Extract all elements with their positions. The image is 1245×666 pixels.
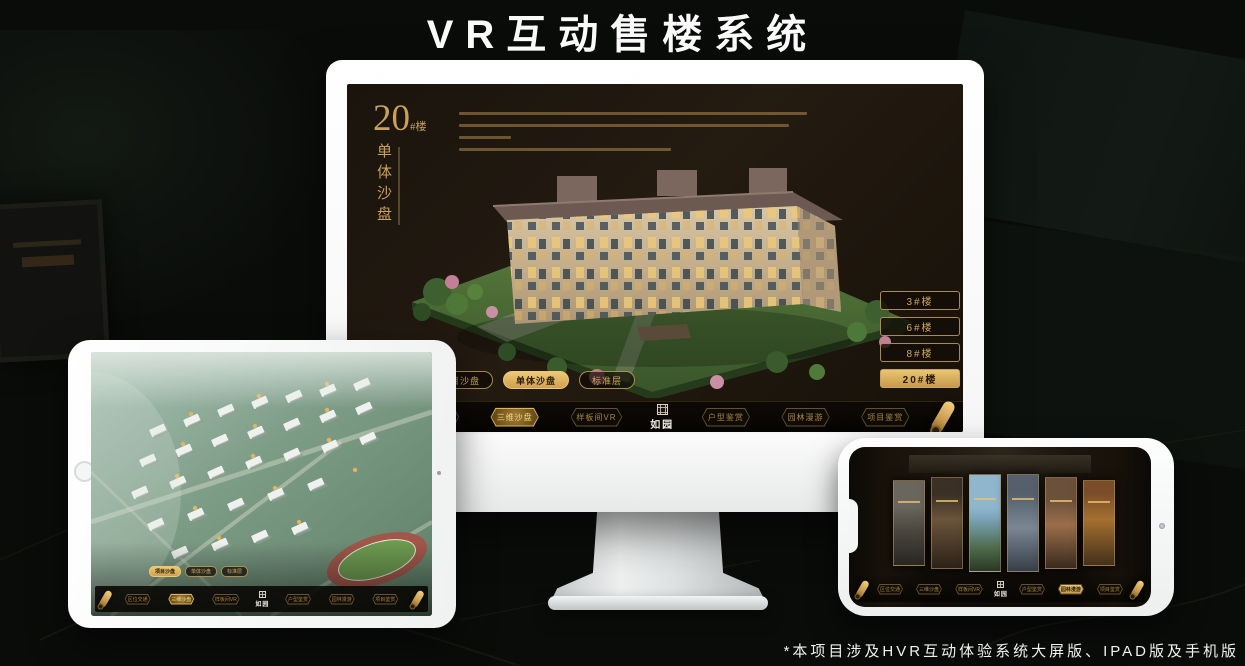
ruyuan-logo: 如园	[650, 404, 674, 431]
footnote: *本项目涉及HVR互动体验系统大屏版、IPAD版及手机版	[784, 640, 1239, 661]
nav-item-garden-tour[interactable]: 园林漫游	[778, 408, 834, 427]
phone-bottom-nav: 区位交通 三维沙盘 样板间VR 如园 户型鉴赏 园林漫游 项目鉴赏	[855, 576, 1145, 602]
nav-item-model-room-vr[interactable]: 样板间VR	[953, 584, 985, 595]
gallery-panel[interactable]	[931, 477, 963, 569]
floor-button-6[interactable]: 6#楼	[880, 317, 960, 336]
gallery-panel[interactable]	[1007, 474, 1039, 572]
scroll-menu-icon[interactable]	[410, 589, 425, 608]
nav-item-3d-sandtable[interactable]: 三维沙盘	[487, 408, 543, 427]
aerial-sandtable-view[interactable]	[91, 352, 432, 616]
nav-item-project-view[interactable]: 项目鉴赏	[857, 408, 913, 427]
gallery-panel-strip	[893, 471, 1115, 575]
nav-item-project-view[interactable]: 项目鉴赏	[370, 594, 400, 605]
tablet-view-tab-group: 项目沙盘 单体沙盘 标准层	[149, 566, 248, 577]
monitor-base	[548, 596, 768, 610]
ruyuan-logo: 如园	[994, 581, 1008, 598]
description-line	[459, 136, 511, 139]
tablet-tab-single-sandtable[interactable]: 单体沙盘	[185, 566, 217, 577]
page-title: VR互动售楼系统	[0, 2, 1245, 60]
phone-camera-dot	[1159, 523, 1165, 529]
floor-button-8[interactable]: 8#楼	[880, 343, 960, 362]
tablet-tab-project-sandtable[interactable]: 项目沙盘	[149, 566, 181, 577]
nav-item-location-traffic[interactable]: 区位交通	[123, 594, 153, 605]
nav-item-model-room-vr[interactable]: 样板间VR	[566, 408, 626, 427]
nav-item-3d-sandtable[interactable]: 三维沙盘	[166, 594, 196, 605]
phone-device: 区位交通 三维沙盘 样板间VR 如园 户型鉴赏 园林漫游 项目鉴赏	[838, 438, 1174, 616]
phone-notch	[849, 499, 858, 553]
tab-standard-floor[interactable]: 标准层	[579, 371, 635, 389]
floor-button-3[interactable]: 3#楼	[880, 291, 960, 310]
nav-item-floorplan[interactable]: 户型鉴赏	[1017, 584, 1047, 595]
ruyuan-seal-icon	[657, 404, 668, 415]
nav-item-floorplan[interactable]: 户型鉴赏	[698, 408, 754, 427]
ruyuan-seal-icon	[259, 591, 266, 598]
ruyuan-logo: 如园	[255, 591, 269, 608]
tab-single-sandtable[interactable]: 单体沙盘	[503, 371, 569, 389]
nav-item-project-view[interactable]: 项目鉴赏	[1095, 584, 1125, 595]
scroll-menu-icon[interactable]	[929, 399, 956, 432]
scroll-menu-icon[interactable]	[1130, 579, 1145, 598]
tablet-camera-dot	[437, 471, 441, 475]
tablet-tab-standard-floor[interactable]: 标准层	[221, 566, 248, 577]
tablet-bottom-nav: 区位交通 三维沙盘 样板间VR 如园 户型鉴赏 园林漫游 项目鉴赏	[95, 586, 428, 612]
nav-item-3d-sandtable[interactable]: 三维沙盘	[914, 584, 944, 595]
nav-item-location-traffic[interactable]: 区位交通	[875, 584, 905, 595]
description-line	[459, 112, 807, 115]
gallery-panel[interactable]	[1083, 480, 1115, 566]
nav-item-model-room-vr[interactable]: 样板间VR	[210, 594, 242, 605]
gallery-panel[interactable]	[893, 480, 925, 566]
gallery-panel[interactable]	[1045, 477, 1077, 569]
nav-item-garden-tour[interactable]: 园林漫游	[1056, 584, 1086, 595]
floor-button-20[interactable]: 20#楼	[880, 369, 960, 388]
stage: VR互动售楼系统 20#楼 单体沙盘	[0, 0, 1245, 666]
gallery-panel[interactable]	[969, 474, 1001, 572]
floor-button-group: 3#楼 6#楼 8#楼 20#楼	[880, 291, 960, 388]
phone-screen: 区位交通 三维沙盘 样板间VR 如园 户型鉴赏 园林漫游 项目鉴赏	[849, 447, 1151, 607]
nav-item-garden-tour[interactable]: 园林漫游	[327, 594, 357, 605]
tablet-screen: 项目沙盘 单体沙盘 标准层 区位交通 三维沙盘 样板间VR 如园 户型鉴赏 园林…	[91, 352, 432, 616]
description-line	[459, 124, 789, 127]
ruyuan-seal-icon	[997, 581, 1004, 588]
view-tab-group: 项目沙盘 单体沙盘 标准层	[427, 371, 635, 389]
tablet-device: 项目沙盘 单体沙盘 标准层 区位交通 三维沙盘 样板间VR 如园 户型鉴赏 园林…	[68, 340, 456, 628]
scroll-menu-icon[interactable]	[855, 579, 870, 598]
scroll-menu-icon[interactable]	[98, 589, 113, 608]
nav-item-floorplan[interactable]: 户型鉴赏	[283, 594, 313, 605]
building-number-unit: #楼	[410, 121, 427, 133]
building-number: 20	[373, 98, 410, 139]
